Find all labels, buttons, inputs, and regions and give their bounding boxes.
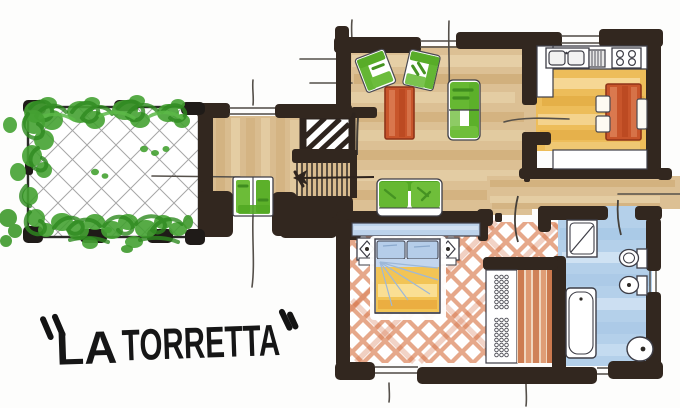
- svg-text:LA: LA: [55, 321, 118, 375]
- svg-text:TORRETTA: TORRETTA: [121, 316, 281, 370]
